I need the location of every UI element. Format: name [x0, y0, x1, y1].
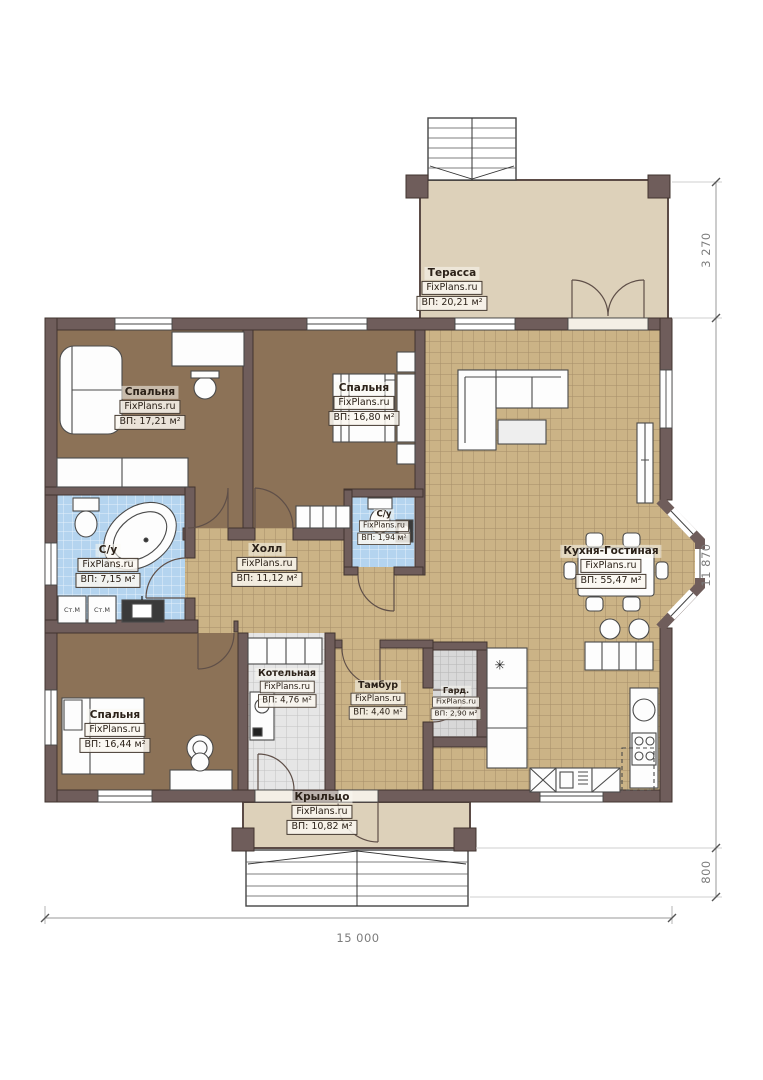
bed-bedroom2 — [333, 374, 395, 442]
stool — [629, 619, 649, 639]
porch-steps — [246, 850, 468, 906]
dimension-house-depth: 11 870 — [699, 543, 713, 586]
boiler-shelf — [248, 638, 322, 664]
nightstand-bedroom2-bottom — [397, 444, 415, 464]
washing-machine-label: Ст.М — [94, 606, 110, 614]
stool — [600, 619, 620, 639]
dining-chair — [586, 597, 603, 611]
washing-machine-label: Ст.М — [64, 606, 80, 614]
desk-bedroom1 — [172, 332, 244, 366]
porch-area — [232, 802, 476, 906]
window-bedroom1-top — [115, 318, 172, 330]
tall-cabinet-column — [487, 648, 527, 768]
window-bedroom3-bottom — [98, 790, 152, 802]
dimension-porch-depth: 800 — [699, 860, 713, 883]
window-bedroom3-left — [45, 690, 57, 745]
window-kitchen-top — [455, 318, 515, 330]
bed-bedroom3 — [62, 698, 144, 774]
chair-back-bedroom1 — [191, 371, 219, 378]
dining-chair — [564, 562, 576, 579]
dining-chair — [586, 533, 603, 547]
toilet-bowl-small — [370, 509, 390, 533]
floor-plan-drawing — [0, 0, 763, 1080]
dining-chair — [623, 533, 640, 547]
toilet-tank — [73, 498, 99, 511]
wardrobe-floor — [433, 650, 477, 737]
terrace-area — [406, 118, 670, 320]
fridge-snowflake-icon: ✳ — [495, 659, 506, 674]
window-living-right — [660, 370, 672, 428]
window-bathroom-left — [45, 543, 57, 585]
dimension-terrace-depth: 3 270 — [699, 232, 713, 267]
terrace-steps — [428, 118, 516, 180]
kitchen-sink-round — [633, 699, 655, 721]
toilet-tank-small — [368, 498, 392, 509]
window-bedroom2-top — [307, 318, 367, 330]
dining-chair — [623, 597, 640, 611]
toilet-bowl — [75, 511, 97, 537]
coffee-table — [498, 420, 546, 444]
dining-table — [578, 548, 654, 596]
chair-bedroom1 — [194, 377, 216, 399]
chair-bedroom3 — [191, 753, 209, 771]
desk-bedroom3 — [170, 770, 232, 790]
sofa-living-vertical — [458, 370, 496, 450]
floor-plan-page: Терасса FixPlans.ru ВП: 20,21 м² Спальня… — [0, 0, 763, 1080]
wardrobe-bedroom2 — [397, 374, 415, 442]
nightstand-bedroom2-top — [397, 352, 415, 372]
dining-chair — [656, 562, 668, 579]
dimension-total-width: 15 000 — [336, 931, 379, 945]
